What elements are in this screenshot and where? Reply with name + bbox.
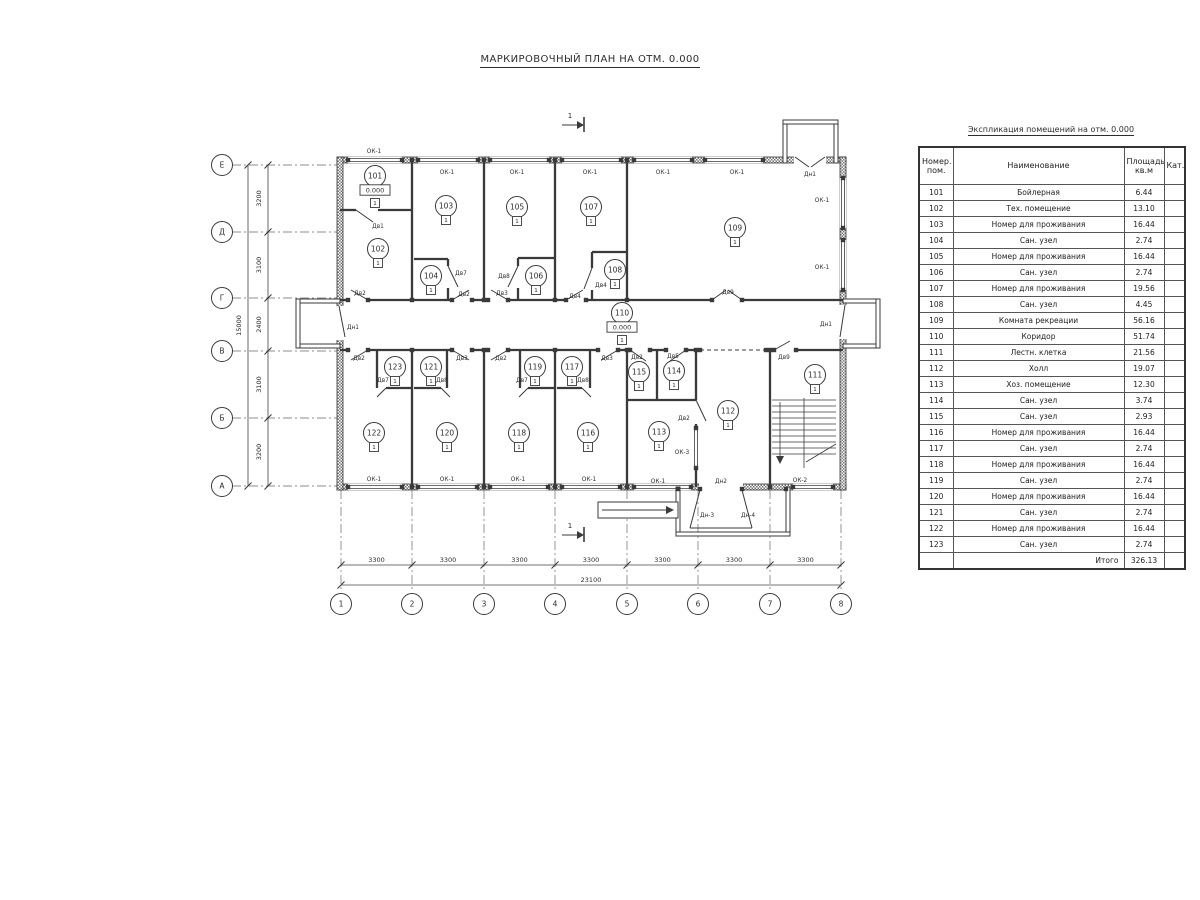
cell-area: 2.74 (1124, 441, 1164, 457)
axis-label-Г: Г (220, 294, 225, 303)
arrowhead (776, 456, 784, 464)
tag-label: ОК-2 (793, 478, 808, 484)
jamb-square (710, 298, 714, 302)
tag-label: Дв9 (722, 290, 734, 296)
axis-label-Б: Б (219, 414, 224, 423)
room-number-121: 121 (424, 363, 439, 372)
room-number-118: 118 (512, 429, 527, 438)
tag-label: ОК-1 (582, 477, 597, 483)
tag-label: Дв8 (577, 378, 589, 384)
cell-name: Номер для проживания (953, 425, 1124, 441)
room-number-111: 111 (808, 371, 823, 380)
tag-label: ОК-1 (656, 170, 671, 176)
jamb-square (488, 158, 492, 162)
tag-label: Дн2 (715, 479, 727, 485)
room-number-108: 108 (608, 266, 623, 275)
jamb-square (547, 158, 551, 162)
floor-type-mark: 1 (393, 379, 397, 385)
tag-label: ОК-1 (440, 477, 455, 483)
room-number-112: 112 (721, 407, 736, 416)
tag-label: ОК-1 (367, 477, 382, 483)
jamb-square (476, 158, 480, 162)
door-leaf (690, 490, 700, 528)
jamb-square (703, 158, 707, 162)
floor-type-mark: 1 (570, 379, 574, 385)
cell-area: 2.74 (1124, 537, 1164, 553)
cell-cat (1164, 521, 1185, 537)
arrowhead (577, 531, 584, 539)
table-header-area: Площадькв.м (1124, 147, 1164, 185)
floor-type-mark: 1 (620, 338, 624, 344)
window (348, 157, 402, 163)
jamb-square (482, 298, 486, 302)
floor-type-mark: 1 (586, 445, 590, 451)
floor-type-mark: 1 (613, 282, 617, 288)
cell-name: Лестн. клетка (953, 345, 1124, 361)
cell-cat (1164, 233, 1185, 249)
cell-num: 103 (919, 217, 953, 233)
cell-num: 110 (919, 329, 953, 345)
jamb-square (400, 485, 404, 489)
cell-num: 117 (919, 441, 953, 457)
jamb-square (553, 348, 557, 352)
dim-value: 3300 (511, 556, 528, 564)
tag-label: Дв2 (631, 355, 643, 361)
room-number-120: 120 (440, 429, 455, 438)
cell-cat (1164, 249, 1185, 265)
cell-name: Сан. узел (953, 473, 1124, 489)
jamb-square (346, 158, 350, 162)
jamb-square (346, 485, 350, 489)
section-label: 1 (568, 112, 572, 120)
jamb-square (488, 485, 492, 489)
door-leaf (696, 400, 706, 421)
stair-break-line (806, 444, 836, 462)
annex-wall (296, 299, 340, 303)
cell-cat (1164, 489, 1185, 505)
table-row-total: Итого326.13 (919, 553, 1185, 570)
table-header-name: Наименование (953, 147, 1124, 185)
door-leaf (742, 490, 752, 528)
tag-label: Дв4 (595, 283, 607, 289)
cell-area: 4.45 (1124, 297, 1164, 313)
jamb-square (506, 348, 510, 352)
cell-area: 2.74 (1124, 233, 1164, 249)
room-number-101: 101 (368, 172, 383, 181)
window (840, 178, 846, 228)
floor-type-mark: 1 (672, 383, 676, 389)
cell-name: Номер для проживания (953, 521, 1124, 537)
cell-cat (1164, 537, 1185, 553)
window (490, 157, 549, 163)
annex-wall (676, 532, 790, 536)
jamb-square (346, 348, 350, 352)
jamb-square (470, 348, 474, 352)
tag-label: ОК-1 (730, 170, 745, 176)
floor-type-mark: 1 (444, 218, 448, 224)
cell-cat (1164, 265, 1185, 281)
door-leaf (582, 388, 591, 397)
explication-table-grid: Номер.пом.НаименованиеПлощадькв.мКат.101… (918, 146, 1186, 570)
table-row-108: 108Сан. узел4.45 (919, 297, 1185, 313)
cell-area: 2.74 (1124, 505, 1164, 521)
floor-type-mark: 1 (726, 423, 730, 429)
jamb-square (482, 158, 486, 162)
dim-value: 3200 (255, 190, 263, 207)
axis-label-В: В (219, 347, 224, 356)
tag-label: Дн1 (820, 322, 832, 328)
jamb-square (628, 348, 632, 352)
total-value: 326.13 (1124, 553, 1164, 570)
arrowhead (577, 121, 584, 129)
jamb-square (410, 298, 414, 302)
cell-cat (1164, 313, 1185, 329)
axis-label-4: 4 (553, 600, 558, 609)
dim-value: 3300 (797, 556, 814, 564)
door-leaf (377, 388, 386, 397)
tag-label: ОК-1 (511, 477, 526, 483)
jamb-square (416, 158, 420, 162)
table-row-105: 105Номер для проживания16.44 (919, 249, 1185, 265)
floor-type-mark: 1 (445, 445, 449, 451)
cell-num: 108 (919, 297, 953, 313)
cell-cat (1164, 505, 1185, 521)
tag-label: Дн-4 (741, 513, 755, 519)
cell-name: Сан. узел (953, 297, 1124, 313)
dim-value: 3200 (255, 444, 263, 461)
cell-name: Тех. помещение (953, 201, 1124, 217)
jamb-square (346, 298, 350, 302)
jamb-square (486, 298, 490, 302)
table-row-103: 103Номер для проживания16.44 (919, 217, 1185, 233)
tag-label: ОК-1 (583, 170, 598, 176)
cell-cat (1164, 217, 1185, 233)
cell-area: 16.44 (1124, 457, 1164, 473)
jamb-square (740, 487, 744, 491)
axis-label-3: 3 (482, 600, 487, 609)
annex-wall (876, 299, 880, 348)
jamb-square (560, 485, 564, 489)
door-leaf (441, 388, 450, 397)
dim-value: 3300 (583, 556, 600, 564)
tag-label: Дв2 (354, 291, 366, 297)
jamb-square (841, 176, 845, 180)
cell-area: 16.44 (1124, 521, 1164, 537)
floor-type-mark: 1 (733, 240, 737, 246)
cell-cat (1164, 457, 1185, 473)
room-number-109: 109 (728, 224, 743, 233)
cell-num: 111 (919, 345, 953, 361)
jamb-square (400, 158, 404, 162)
jamb-square (410, 485, 414, 489)
tag-label: Дв2 (458, 292, 470, 298)
table-row-107: 107Номер для проживания19.56 (919, 281, 1185, 297)
jamb-square (625, 298, 629, 302)
jamb-square (553, 298, 557, 302)
cell-name: Сан. узел (953, 233, 1124, 249)
axis-label-1: 1 (339, 600, 344, 609)
annex-wall (843, 299, 880, 303)
table-row-114: 114Сан. узел3.74 (919, 393, 1185, 409)
floor-type-mark: 1 (589, 219, 593, 225)
jamb-square (616, 348, 620, 352)
jamb-square (841, 226, 845, 230)
annex-wall (296, 299, 300, 348)
annex-wall (843, 344, 880, 348)
jamb-square (410, 158, 414, 162)
room-number-119: 119 (528, 363, 543, 372)
tag-label: Дв2 (678, 416, 690, 422)
cell-name: Бойлерная (953, 185, 1124, 201)
cell-name: Сан. узел (953, 393, 1124, 409)
jamb-square (553, 485, 557, 489)
window (840, 240, 846, 290)
cell-name: Номер для проживания (953, 249, 1124, 265)
cell-num: 113 (919, 377, 953, 393)
room-number-114: 114 (667, 367, 682, 376)
axis-label-5: 5 (625, 600, 630, 609)
cell-cat (1164, 409, 1185, 425)
jamb-square (648, 348, 652, 352)
jamb-square (841, 238, 845, 242)
cell-num: 122 (919, 521, 953, 537)
tag-label: ОК-1 (510, 170, 525, 176)
jamb-square (694, 426, 698, 430)
tag-label: Дн1 (347, 325, 359, 331)
table-row-101: 101Бойлерная6.44 (919, 185, 1185, 201)
cell-cat (1164, 377, 1185, 393)
cell-num: 114 (919, 393, 953, 409)
window (490, 484, 548, 490)
cell-area: 6.44 (1124, 185, 1164, 201)
floor-type-mark: 1 (813, 387, 817, 393)
tag-label: Дв8 (498, 274, 510, 280)
window (634, 157, 692, 163)
table-header-num: Номер.пом. (919, 147, 953, 185)
tag-label: ОК-1 (440, 170, 455, 176)
room-number-115: 115 (632, 368, 647, 377)
window (418, 484, 477, 490)
door-leaf (584, 268, 592, 289)
jamb-square (694, 466, 698, 470)
annex-wall (783, 120, 838, 124)
cell-name: Номер для проживания (953, 281, 1124, 297)
jamb-square (546, 485, 550, 489)
jamb-square (632, 485, 636, 489)
table-row-120: 120Номер для проживания16.44 (919, 489, 1185, 505)
room-number-113: 113 (652, 428, 667, 437)
tag-label: ОК-1 (815, 265, 830, 271)
jamb-square (560, 158, 564, 162)
window (693, 428, 699, 468)
total-label: Итого (953, 553, 1124, 570)
jamb-square (761, 158, 765, 162)
table-row-123: 123Сан. узел2.74 (919, 537, 1185, 553)
dim-total: 23100 (581, 576, 602, 584)
jamb-square (841, 288, 845, 292)
dim-value: 3300 (654, 556, 671, 564)
dim-value: 3300 (440, 556, 457, 564)
tag-label: Дв5 (667, 354, 679, 360)
tag-label: Дв7 (455, 271, 467, 277)
jamb-square (506, 298, 510, 302)
jamb-square (694, 348, 698, 352)
cell-num: 115 (919, 409, 953, 425)
jamb-square (772, 348, 776, 352)
tag-label: Дв1 (372, 224, 384, 230)
dim-value: 2400 (255, 316, 263, 333)
tag-label: Дв9 (778, 355, 790, 361)
dim-value: 3300 (726, 556, 743, 564)
tag-label: ОК-1 (651, 479, 666, 485)
cell-name: Номер для проживания (953, 217, 1124, 233)
cell-num: 109 (919, 313, 953, 329)
level-value: 0.000 (613, 323, 632, 331)
jamb-square (450, 298, 454, 302)
floor-type-mark: 1 (429, 379, 433, 385)
dim-total: 15000 (235, 315, 243, 336)
cell-name: Сан. узел (953, 537, 1124, 553)
cell-name: Сан. узел (953, 409, 1124, 425)
cell-area: 19.56 (1124, 281, 1164, 297)
floor-type-mark: 1 (517, 445, 521, 451)
cell-blank (1164, 553, 1185, 570)
table-row-113: 113Хоз. помещение12.30 (919, 377, 1185, 393)
cell-num: 102 (919, 201, 953, 217)
jamb-square (740, 298, 744, 302)
cell-blank (919, 553, 953, 570)
jamb-square (486, 348, 490, 352)
floor-type-mark: 1 (429, 288, 433, 294)
floor-type-mark: 1 (376, 261, 380, 267)
axis-label-Е: Е (220, 161, 225, 170)
annex-wall (834, 120, 838, 163)
cell-num: 118 (919, 457, 953, 473)
jamb-square (831, 485, 835, 489)
jamb-square (619, 158, 623, 162)
jamb-square (664, 348, 668, 352)
cell-area: 12.30 (1124, 377, 1164, 393)
cell-cat (1164, 281, 1185, 297)
cell-area: 3.74 (1124, 393, 1164, 409)
jamb-square (482, 485, 486, 489)
cell-num: 119 (919, 473, 953, 489)
jamb-square (584, 298, 588, 302)
jamb-square (564, 298, 568, 302)
room-number-123: 123 (388, 363, 403, 372)
explication-title-text: Экспликация помещений на отм. 0.000 (968, 125, 1134, 136)
table-row-102: 102Тех. помещение13.10 (919, 201, 1185, 217)
table-row-119: 119Сан. узел2.74 (919, 473, 1185, 489)
cell-num: 106 (919, 265, 953, 281)
cell-num: 120 (919, 489, 953, 505)
cell-cat (1164, 185, 1185, 201)
window (793, 484, 833, 490)
jamb-square (475, 485, 479, 489)
jamb-square (784, 487, 788, 491)
dim-value: 3300 (368, 556, 385, 564)
cell-name: Сан. узел (953, 505, 1124, 521)
tag-label: Дн-3 (700, 513, 714, 519)
axis-label-2: 2 (410, 600, 415, 609)
level-value: 0.000 (366, 186, 385, 194)
room-number-106: 106 (529, 272, 544, 281)
cell-cat (1164, 297, 1185, 313)
tag-label: Дв4 (569, 294, 581, 300)
door-leaf (356, 210, 373, 222)
floor-type-mark: 1 (657, 444, 661, 450)
table-row-111: 111Лестн. клетка21.56 (919, 345, 1185, 361)
window (705, 157, 763, 163)
cell-num: 116 (919, 425, 953, 441)
explication-table: Номер.пом.НаименованиеПлощадькв.мКат.101… (918, 146, 1186, 570)
jamb-square (764, 348, 768, 352)
jamb-square (482, 348, 486, 352)
cell-area: 16.44 (1124, 249, 1164, 265)
annex-wall (786, 487, 790, 536)
cell-cat (1164, 425, 1185, 441)
table-row-116: 116Номер для проживания16.44 (919, 425, 1185, 441)
table-row-121: 121Сан. узел2.74 (919, 505, 1185, 521)
dim-value: 3100 (255, 376, 263, 393)
tag-label: Дв2 (495, 356, 507, 362)
cell-name: Номер для проживания (953, 489, 1124, 505)
annex-wall (296, 344, 340, 348)
jamb-square (596, 348, 600, 352)
jamb-square (794, 348, 798, 352)
jamb-square (553, 158, 557, 162)
jamb-square (791, 485, 795, 489)
tag-label: ОК-1 (815, 198, 830, 204)
room-number-117: 117 (565, 363, 580, 372)
window (562, 157, 621, 163)
cell-cat (1164, 345, 1185, 361)
axis-label-А: А (219, 482, 225, 491)
cell-name: Сан. узел (953, 265, 1124, 281)
drawing-page: МАРКИРОВОЧНЫЙ ПЛАН НА ОТМ. 0.000 111010.… (0, 0, 1200, 900)
tag-label: Дв7 (516, 378, 528, 384)
cell-num: 112 (919, 361, 953, 377)
cell-name: Номер для проживания (953, 457, 1124, 473)
cell-area: 2.74 (1124, 473, 1164, 489)
cell-num: 105 (919, 249, 953, 265)
cell-area: 19.07 (1124, 361, 1164, 377)
tag-label: ОК-3 (675, 450, 690, 456)
table-row-115: 115Сан. узел2.93 (919, 409, 1185, 425)
cell-num: 104 (919, 233, 953, 249)
table-header-cat: Кат. (1164, 147, 1185, 185)
tag-label: Дв3 (601, 356, 613, 362)
table-row-109: 109Комната рекреации56.16 (919, 313, 1185, 329)
tag-label: Дв2 (353, 356, 365, 362)
room-number-107: 107 (584, 203, 599, 212)
cell-num: 101 (919, 185, 953, 201)
cell-cat (1164, 361, 1185, 377)
cell-cat (1164, 441, 1185, 457)
cell-name: Холл (953, 361, 1124, 377)
table-row-112: 112Холл19.07 (919, 361, 1185, 377)
cell-name: Хоз. помещение (953, 377, 1124, 393)
jamb-square (416, 485, 420, 489)
jamb-square (625, 485, 629, 489)
cell-area: 51.74 (1124, 329, 1164, 345)
cell-area: 13.10 (1124, 201, 1164, 217)
window (562, 484, 620, 490)
jamb-square (768, 485, 772, 489)
cell-area: 2.74 (1124, 265, 1164, 281)
table-row-110: 110Коридор51.74 (919, 329, 1185, 345)
cell-num: 121 (919, 505, 953, 521)
